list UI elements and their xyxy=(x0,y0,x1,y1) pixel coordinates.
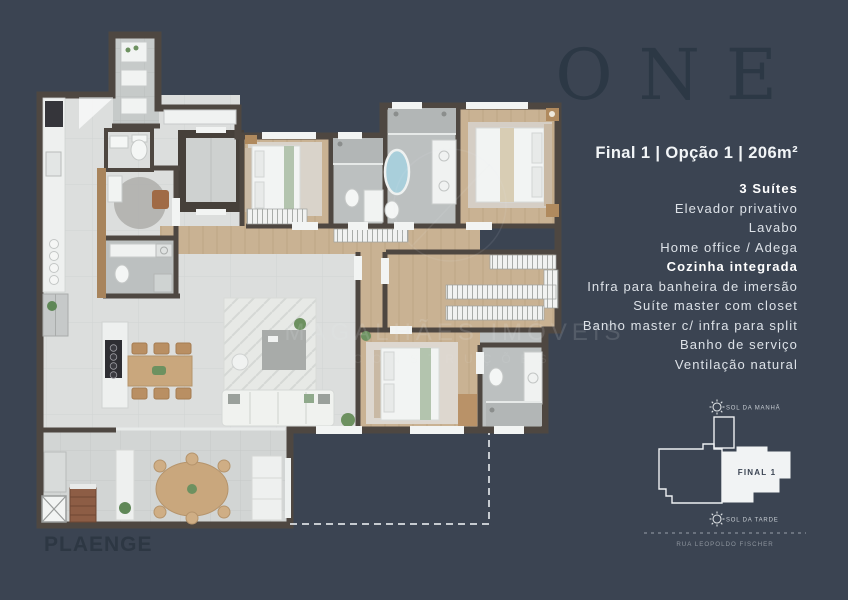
nightstand xyxy=(546,204,559,217)
private-elevator xyxy=(178,127,244,215)
plant xyxy=(119,502,131,514)
one-logo: ONE xyxy=(555,40,803,110)
armchair xyxy=(152,190,169,209)
washer xyxy=(156,244,172,257)
watermark-line1: MAGALHÃES IMÓVEIS xyxy=(284,319,625,346)
toilet xyxy=(489,368,503,386)
wardrobe xyxy=(247,209,307,224)
toilet xyxy=(385,201,399,219)
info-panel: Final 1 | Opção 1 | 206m² 3 Suítes Eleva… xyxy=(583,144,798,374)
bench xyxy=(252,456,282,520)
sun-morning-label: SOL DA MANHÃ xyxy=(726,405,780,412)
page-background: MAGALHÃES IMÓVEIS CONSTRUÇÕES ONE Final … xyxy=(0,0,848,600)
building-footprint: FINAL 1 xyxy=(659,417,790,503)
feature-item: Lavabo xyxy=(583,218,798,238)
cabinet xyxy=(44,452,66,492)
feature-item: Home office / Adega xyxy=(583,238,798,258)
feature-item: Suíte master com closet xyxy=(583,296,798,316)
feature-item: Banho de serviço xyxy=(583,335,798,355)
dashed-projection-line xyxy=(290,433,489,524)
headboard xyxy=(245,148,252,212)
sink xyxy=(46,152,61,176)
sun-afternoon-icon xyxy=(710,512,725,527)
final1-label: FINAL 1 xyxy=(738,468,776,477)
plant xyxy=(47,301,57,311)
feature-list: 3 Suítes Elevador privativo Lavabo Home … xyxy=(583,179,798,374)
sun-afternoon-label: SOL DA TARDE xyxy=(726,518,779,524)
elevator-door xyxy=(196,209,226,215)
corridor-cabinet xyxy=(334,229,408,242)
feature-item: Cozinha integrada xyxy=(583,257,798,277)
feature-item: Elevador privativo xyxy=(583,199,798,219)
core-outline xyxy=(714,417,734,448)
elevator-door xyxy=(196,127,226,133)
sink xyxy=(110,136,128,148)
feature-item: 3 Suítes xyxy=(583,179,798,199)
feature-item: Banho master c/ infra para split xyxy=(583,316,798,336)
oven xyxy=(45,101,63,127)
suite-2 xyxy=(245,135,322,224)
adega-cabinet xyxy=(97,168,106,298)
balcony-planters xyxy=(121,42,147,114)
toilet xyxy=(115,265,129,283)
street-label: RUA LEOPOLDO FISCHER xyxy=(676,541,773,548)
headboard xyxy=(544,124,552,206)
feature-item: Ventilação natural xyxy=(583,355,798,375)
nightstand xyxy=(245,135,257,144)
grill xyxy=(70,488,96,522)
key-plan: SOL DA MANHÃ FINAL 1 SOL DA TARDE RUA LE… xyxy=(630,385,820,555)
unit-title: Final 1 | Opção 1 | 206m² xyxy=(583,144,798,163)
toilet xyxy=(131,140,147,160)
cabinet xyxy=(458,394,477,426)
sun-morning-icon xyxy=(710,400,725,415)
vanity xyxy=(364,190,383,222)
side-table xyxy=(232,354,248,370)
shower xyxy=(486,402,542,426)
shower xyxy=(154,274,172,292)
neighbor-unit-outline xyxy=(659,444,722,503)
shower-head xyxy=(338,142,343,147)
plant xyxy=(341,413,355,427)
kitchen xyxy=(43,98,68,336)
desk xyxy=(108,176,122,202)
shaft xyxy=(42,496,66,522)
master-bedroom xyxy=(468,108,559,217)
plaenge-logo: PLAENGE xyxy=(44,533,153,557)
toilet xyxy=(345,189,359,207)
double-shower xyxy=(388,108,456,134)
watermark-line2: CONSTRUÇÕES xyxy=(353,351,556,366)
feature-item: Infra para banheira de imersão xyxy=(583,277,798,297)
hall-cabinet xyxy=(164,110,236,124)
